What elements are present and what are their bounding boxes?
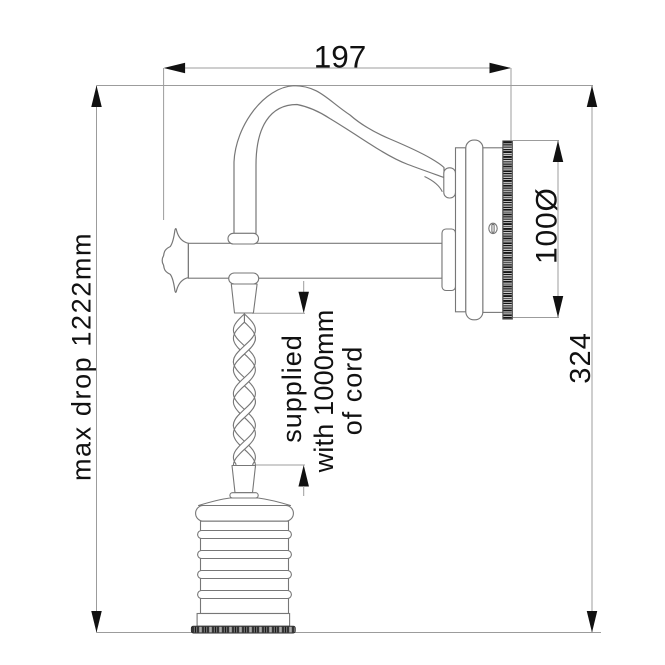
svg-text:324: 324 bbox=[565, 332, 597, 384]
svg-text:supplied: supplied bbox=[277, 334, 307, 443]
svg-text:max drop 1222mm: max drop 1222mm bbox=[67, 232, 97, 481]
svg-text:197: 197 bbox=[314, 38, 367, 74]
svg-text:100Ø: 100Ø bbox=[531, 187, 564, 264]
svg-text:of cord: of cord bbox=[338, 346, 368, 436]
svg-text:with 1000mm: with 1000mm bbox=[309, 310, 339, 474]
